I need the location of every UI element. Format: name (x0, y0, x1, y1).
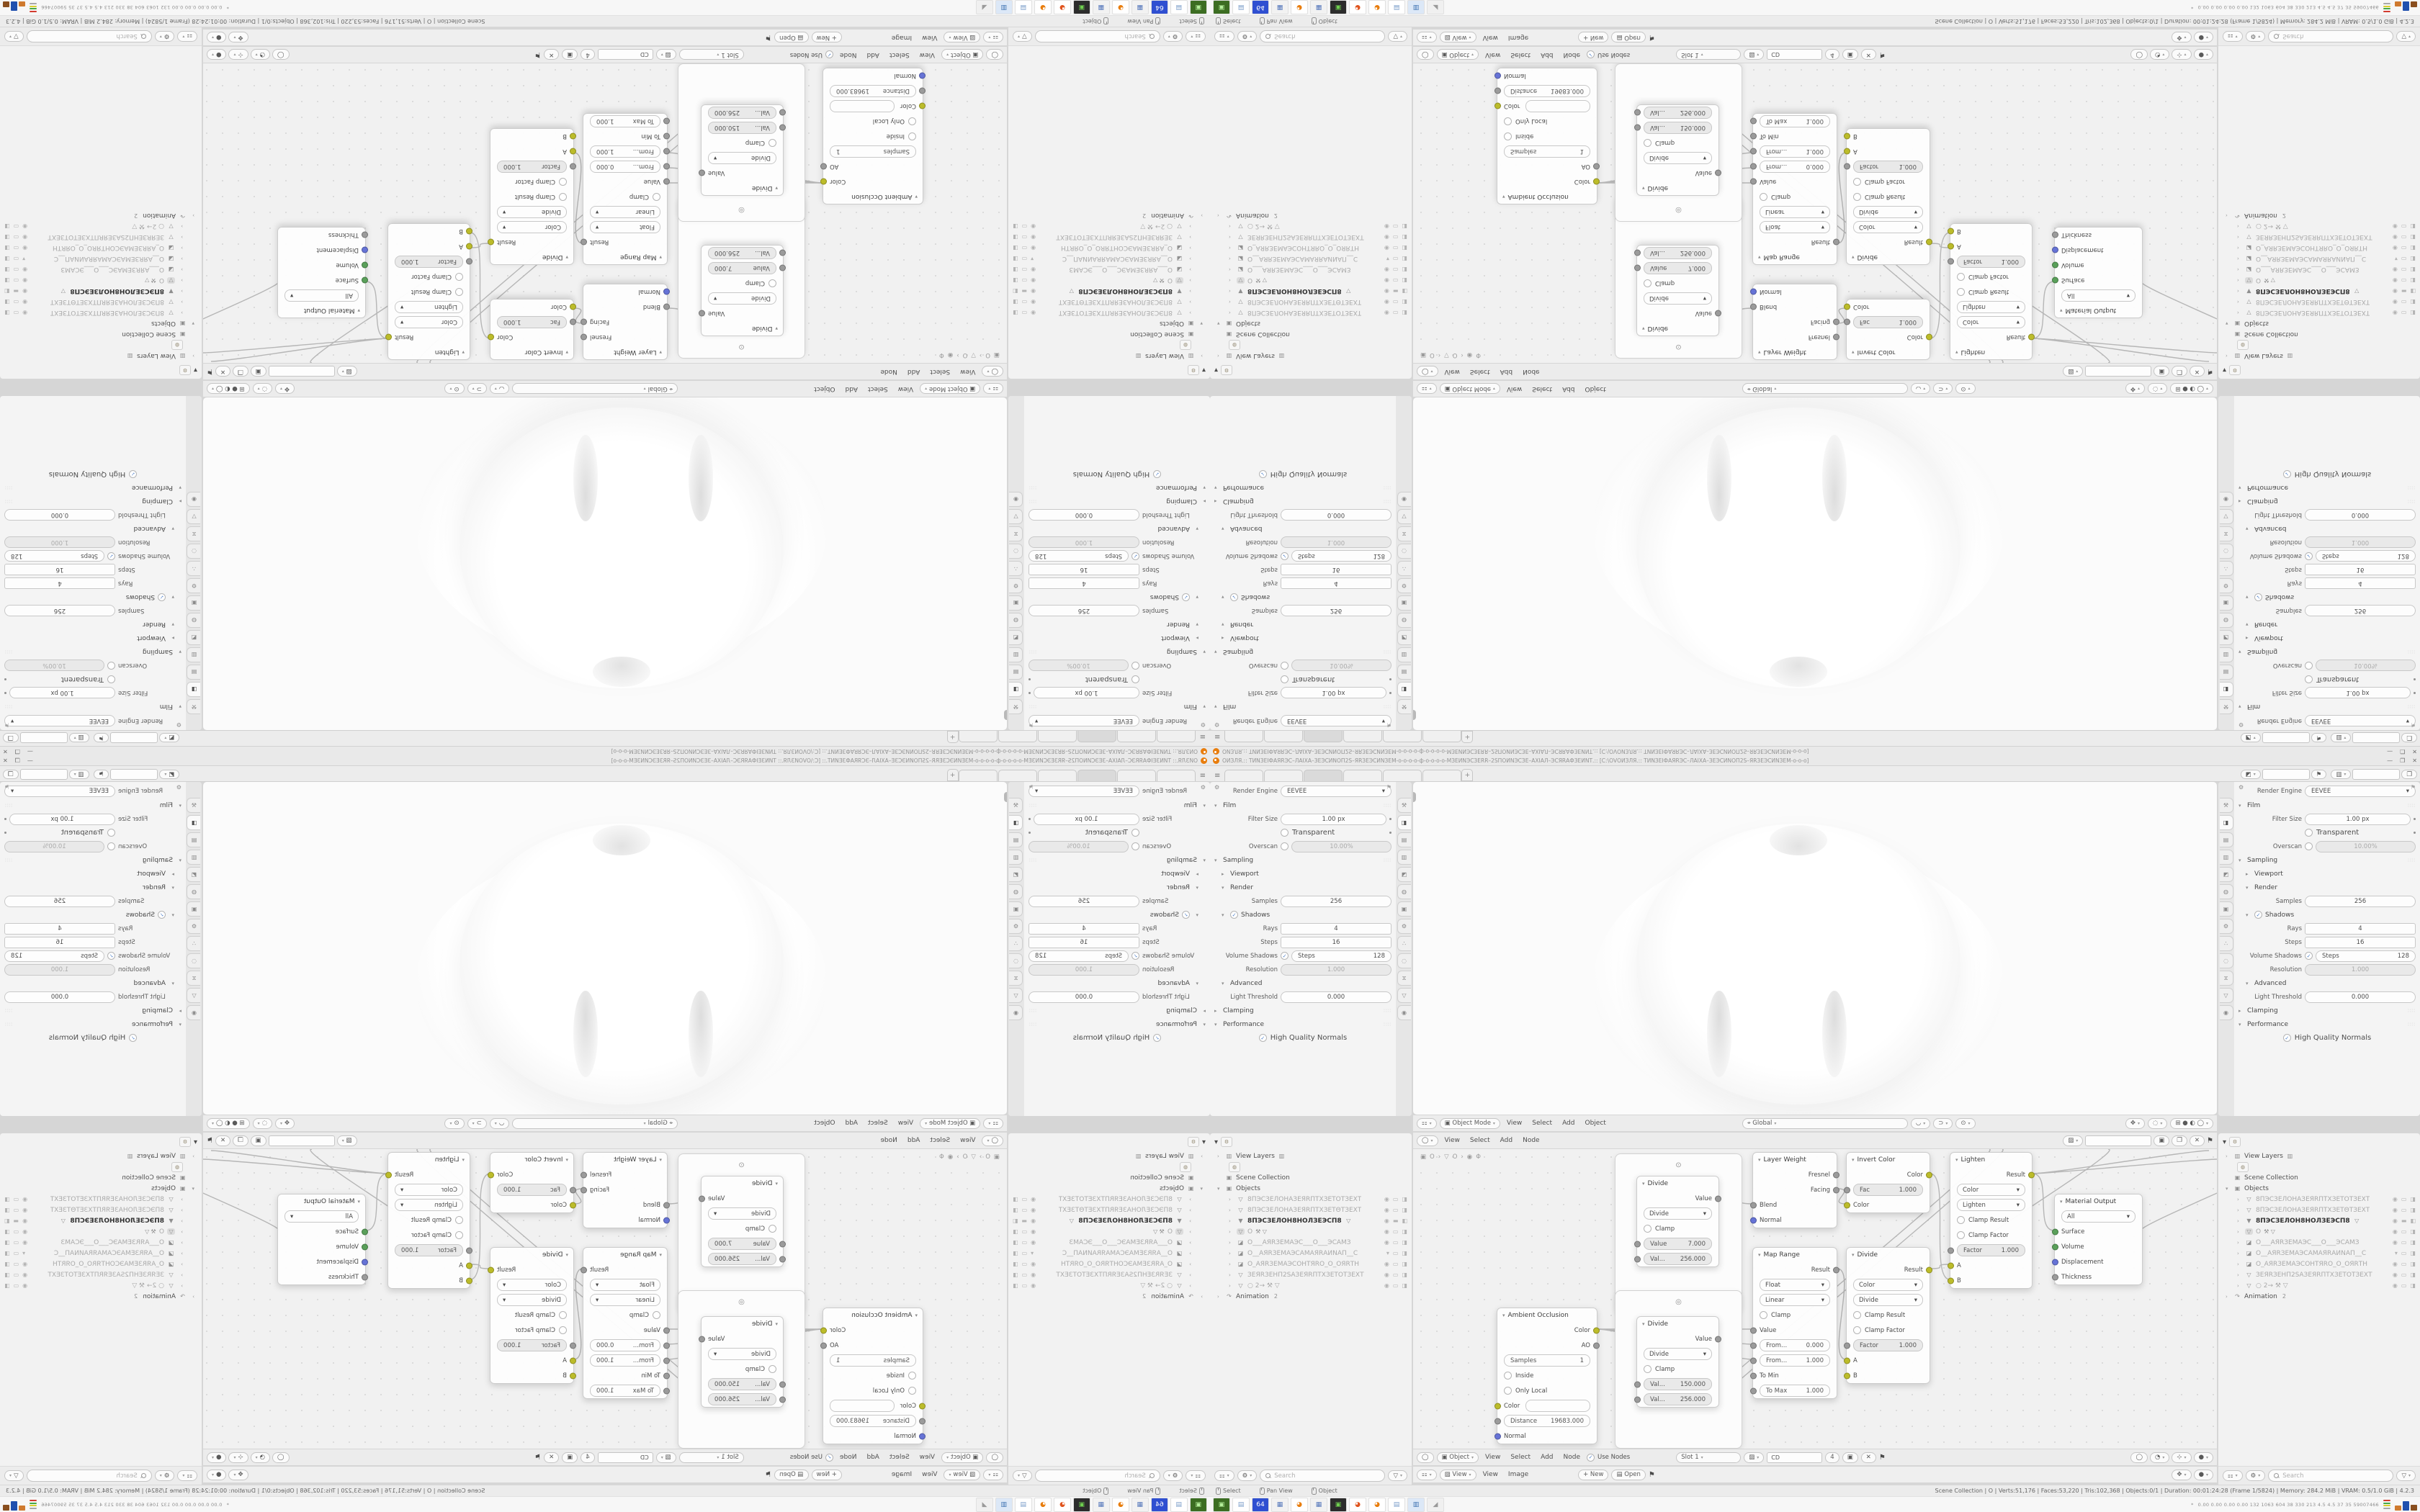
node-ambient-occlusion[interactable]: ▾Ambient OcclusionColorAOSamples1InsideO… (1497, 68, 1597, 204)
image-browse-button[interactable]: ▨▾ (337, 366, 357, 377)
collapse-caret-icon[interactable]: ▾ (1758, 1157, 1761, 1163)
new-image-button[interactable]: + New (1578, 32, 1608, 43)
unlink-button[interactable]: ✕ (2190, 1135, 2205, 1146)
node-header[interactable]: ▾Divide (1847, 250, 1930, 264)
outliner-display-mode-icon[interactable]: ⚙ (1188, 1137, 1199, 1147)
viewlayer-name-field[interactable] (2352, 769, 2400, 780)
minimize-button[interactable]: — (27, 748, 33, 755)
node-value-field[interactable]: Value7.000 (1644, 1238, 1712, 1250)
input-socket[interactable] (663, 1202, 670, 1208)
visibility-toggle-icon[interactable]: ◨ (2410, 310, 2416, 316)
search-input[interactable]: Search (2268, 30, 2393, 42)
workspace-tab-5[interactable] (1383, 731, 1422, 742)
section-sampling[interactable]: ▾Sampling∷∷ (2234, 645, 2420, 659)
input-socket[interactable] (2052, 277, 2058, 284)
unlink-button[interactable]: ✕ (215, 1135, 230, 1146)
prop-keyvalue-field[interactable]: Steps128 (2316, 950, 2416, 962)
outliner-object-row[interactable]: ›▽O⚒ ▽◉▭◨ (0, 275, 202, 286)
calculator-icon[interactable]: ▦ (1093, 1, 1110, 15)
menu-view[interactable]: View (918, 34, 941, 41)
section-render[interactable]: ▾Render (1024, 881, 1210, 894)
render-icon[interactable]: ◨ (1397, 815, 1411, 830)
firefox-icon[interactable]: ◕ (1349, 1, 1366, 15)
outliner-object-row[interactable]: ›◪O___АЯRЗЕМАЭС___O___ЭСАМЗ◉▭◨ (0, 1237, 202, 1248)
constraint-icon[interactable]: ⧖ (187, 526, 201, 541)
visibility-toggle-icon[interactable]: ◨ (1402, 1207, 1407, 1213)
animate-dot[interactable] (1028, 818, 1031, 820)
node-value-field[interactable]: Val...256.000 (708, 1253, 776, 1265)
prop-value-field[interactable]: 1.000 (1281, 537, 1391, 549)
visibility-toggle-icon[interactable]: ◨ (1402, 1239, 1407, 1246)
visibility-toggle-icon[interactable]: ▾ (1386, 256, 1389, 262)
scene-icon[interactable]: ◩▾ (159, 770, 179, 779)
visibility-toggle-icon[interactable]: ◨ (4, 310, 10, 316)
checkbox-icon[interactable] (1281, 662, 1289, 670)
radio-unchecked-icon[interactable] (559, 178, 567, 186)
new-image-button[interactable]: + New (1578, 1470, 1608, 1480)
outliner-animation-row[interactable]: ›↷Animation2 (1008, 1291, 1210, 1302)
prop-value-field[interactable]: 10.00% (1028, 660, 1129, 672)
viewlayer-selector[interactable]: ▥▾ ❐ (3, 769, 89, 780)
outliner-world-row[interactable]: ◍ (2218, 1161, 2420, 1172)
visibility-toggle-icon[interactable]: ◉ (1384, 288, 1389, 294)
visibility-toggle-icon[interactable]: ◉ (22, 1218, 27, 1224)
checkbox-icon[interactable] (1281, 675, 1289, 683)
visibility-toggle-icon[interactable]: ◉ (2393, 1272, 2398, 1278)
files-icon[interactable]: ▥ (1407, 1, 1425, 15)
visibility-toggle-icon[interactable]: ▭ (14, 1272, 19, 1278)
outliner-world-row[interactable]: ◍ (0, 340, 202, 351)
checkbox-icon[interactable] (1281, 829, 1289, 837)
node-select-dropdown[interactable]: Color▾ (1853, 1279, 1923, 1291)
node-select-dropdown[interactable]: All▾ (284, 289, 359, 302)
viewlayer-selector[interactable]: ▥▾ ❐ (3, 732, 89, 743)
image-browse-button[interactable]: ▨▾ (337, 1135, 357, 1146)
firefox-icon[interactable]: ◕ (1349, 1498, 1366, 1512)
visibility-toggle-icon[interactable]: ◉ (22, 288, 27, 294)
node-value-field[interactable]: Val...150.000 (1644, 122, 1712, 134)
minimize-button[interactable]: — (2387, 757, 2393, 764)
prop-value-field[interactable]: 16 (2305, 564, 2416, 576)
blender-icon[interactable]: ◕ (1034, 1, 1052, 15)
visibility-toggle-icon[interactable]: ◨ (1402, 1228, 1407, 1235)
checkbox-icon[interactable] (2305, 662, 2313, 670)
outliner-object-row[interactable]: ›▼8ПЭСЗЕЛОН8НОЛЗЕЭСП8▽◉▬◧ (1210, 1215, 1412, 1226)
material-slot-dropdown[interactable]: Slot 1▾ (679, 50, 744, 60)
calculator-icon[interactable]: ▦ (1271, 1, 1289, 15)
overlay-toggle-button[interactable]: ●▾ (2194, 32, 2213, 43)
prop-value-field[interactable]: 1.000 (4, 964, 115, 976)
section-sampling[interactable]: ▾Sampling∷∷ (1024, 853, 1210, 867)
use-nodes-toggle[interactable]: ✓Use Nodes (790, 1454, 833, 1462)
menu-add[interactable]: Add (904, 1137, 923, 1144)
outliner-object-row[interactable]: ›◪O_АЯRЗЕМАЭСОНТЯRО_O_ОЯRТН◉▭◨ (1210, 1259, 1412, 1269)
input-socket[interactable] (779, 265, 786, 271)
visibility-toggle-icon[interactable]: ◧ (4, 288, 10, 294)
visibility-toggle-icon[interactable]: ◨ (2410, 1207, 2416, 1213)
collapse-caret-icon[interactable]: ▾ (659, 349, 662, 355)
filter-button[interactable]: ▽▾ (1013, 31, 1032, 42)
world-icon[interactable]: ◍ (187, 884, 201, 899)
visibility-toggle-icon[interactable]: ▭ (2401, 1261, 2407, 1267)
unlink-button[interactable]: ✕ (2190, 366, 2205, 377)
node-select-dropdown[interactable]: Float▾ (1760, 221, 1830, 233)
outliner-view-layers[interactable]: ›▥View Layers▥ (1008, 1151, 1210, 1161)
outliner-object-row[interactable]: ›▽8ПЭСЗЕЛОНАЗЕЯRПТХЗЕТОТЗЕХТ◉▭◨ (0, 1194, 202, 1205)
datablock-name-field[interactable]: CD (598, 1452, 653, 1463)
node-divide[interactable]: ▾DivideResultColor▾Divide▾Clamp ResultCl… (490, 1247, 574, 1384)
input-socket[interactable] (919, 88, 926, 94)
visibility-toggle-icon[interactable]: ◉ (1384, 1239, 1389, 1246)
node-map-range[interactable]: ▾Map RangeResultFloat▾Linear▾ClampValueF… (1752, 113, 1837, 265)
app-menu-icon[interactable]: ≡ (1213, 731, 1224, 740)
visibility-toggle-icon[interactable]: ▭ (2401, 1228, 2407, 1235)
collapse-caret-icon[interactable]: ▾ (1852, 1252, 1855, 1258)
checkbox-icon[interactable] (107, 675, 115, 683)
input-socket[interactable] (663, 148, 670, 155)
node-header[interactable]: ▾Map Range (1753, 250, 1837, 264)
checkbox-icon[interactable] (1131, 662, 1139, 670)
node-header[interactable]: ▾Divide (490, 1248, 573, 1262)
shadows-checkbox[interactable]: ✓ (1230, 911, 1238, 919)
radio-unchecked-icon[interactable] (768, 1225, 776, 1233)
editor-type-button[interactable]: ⚏▾ (1186, 1470, 1206, 1481)
node-layer-weight[interactable]: ▾Layer WeightFresnelFacingBlendNormal (1752, 284, 1837, 360)
input-socket[interactable] (1750, 1357, 1757, 1364)
color-swatch-field[interactable] (830, 1400, 895, 1412)
editor-type-button[interactable]: ◯ (1417, 1452, 1434, 1463)
particles-icon[interactable]: ∴ (1010, 936, 1023, 951)
constraint-icon[interactable]: ⧖ (1010, 971, 1023, 986)
checkbox-icon[interactable]: ✓ (1259, 1034, 1267, 1042)
outliner-object-row[interactable]: ›▽O⚒ ▽◉▭◨ (1008, 1226, 1210, 1237)
radio-unchecked-icon[interactable] (455, 1216, 463, 1224)
outliner-object-row[interactable]: ›▼8ПЭСЗЕЛОН8НОЛЗЕЭСП8▽◉▬◧ (0, 1215, 202, 1226)
output-socket[interactable] (581, 239, 587, 246)
output-socket[interactable] (820, 1342, 827, 1349)
tool-icon[interactable]: ⚒ (1397, 798, 1411, 813)
visibility-toggle-icon[interactable]: ◨ (2410, 223, 2416, 230)
visibility-toggle-icon[interactable]: ▭ (2401, 1196, 2407, 1202)
section-sampling[interactable]: ▾Sampling∷∷ (1024, 645, 1210, 659)
editor-type-button[interactable]: ◯ (1417, 50, 1434, 60)
monitor-app-icon[interactable]: ▣ (1073, 1, 1090, 15)
prop-value-field[interactable]: 256 (1281, 606, 1391, 617)
node-select-dropdown[interactable]: Divide▾ (708, 1207, 776, 1220)
node-lighten[interactable]: ▾LightenResultColor▾Lighten▾Clamp Result… (387, 223, 470, 360)
shadows-checkbox[interactable]: ✓ (1230, 593, 1238, 601)
viewlayer-selector[interactable]: ▥▾ ❐ (2331, 732, 2417, 743)
color-swatch-field[interactable] (1525, 1400, 1590, 1412)
shield-fake-user-button[interactable]: ▣ (562, 1452, 578, 1463)
editor-type-button[interactable]: ⚏▾ (983, 384, 1003, 395)
input-socket[interactable] (362, 247, 368, 253)
visibility-toggle-icon[interactable]: ▭ (14, 1207, 19, 1213)
scene-icon[interactable]: ◩ (1010, 630, 1023, 645)
visibility-toggle-icon[interactable]: ▭ (2401, 234, 2407, 240)
node-map-range[interactable]: ▾Map RangeResultFloat▾Linear▾ClampValueF… (583, 113, 668, 265)
input-socket[interactable] (1750, 148, 1757, 155)
outliner-object-row[interactable]: ›▽O⚒ ▽◉▭◨ (1008, 275, 1210, 286)
animate-dot[interactable] (4, 692, 6, 694)
menu-view[interactable]: View (895, 385, 917, 392)
visibility-toggle-icon[interactable]: ◉ (22, 223, 27, 230)
toolbar-toggle-nub[interactable] (1413, 792, 1416, 802)
3d-viewport[interactable] (203, 397, 1007, 730)
section-viewport[interactable]: ▸Viewport (1024, 867, 1210, 881)
prop-value-field[interactable]: 1.000 (1028, 964, 1139, 976)
menu-add[interactable]: Add (904, 368, 923, 375)
prop-value-field[interactable]: 0.000 (1028, 510, 1139, 521)
input-socket[interactable] (1844, 1357, 1850, 1364)
prop-value-field[interactable]: 1.00 px (1034, 814, 1139, 825)
input-socket[interactable] (1750, 1327, 1757, 1333)
node-divide[interactable]: ▾DivideResultColor▾Divide▾Clamp ResultCl… (490, 128, 574, 265)
new-copy-button[interactable]: ❐ (233, 1135, 248, 1146)
input-socket[interactable] (1750, 1217, 1757, 1223)
particles-icon[interactable]: ∴ (1397, 561, 1411, 576)
collapse-caret-icon[interactable]: ▾ (775, 185, 778, 191)
section-clamping[interactable]: ▸Clamping∷∷ (2234, 495, 2420, 508)
visibility-toggle-icon[interactable]: ▭ (1393, 1228, 1399, 1235)
visibility-toggle-icon[interactable]: ◉ (22, 1239, 27, 1246)
new-copy-button[interactable]: ❐ (2172, 1135, 2187, 1146)
viewlayer-name-field[interactable] (2352, 732, 2400, 743)
speaker-muted-icon[interactable]: ◢ (1427, 1, 1444, 15)
prop-value-field[interactable]: 4 (4, 923, 115, 935)
notepad-icon[interactable]: ▤ (1170, 1, 1188, 15)
outliner-object-row[interactable]: ›▽8ПЭСЗЕЛОНАЗЕЯRПТХЗЕТОТЗЕХТ◉▭◨ (2218, 1194, 2420, 1205)
scene-selector[interactable]: ◩▾ ⚑ (2241, 732, 2327, 743)
visibility-toggle-icon[interactable]: ▭ (1022, 1272, 1028, 1278)
snap-button[interactable]: ◡▾ (1911, 384, 1930, 395)
overlay-button[interactable]: ◌▾ (2148, 384, 2167, 395)
outliner-object-row[interactable]: ›▽○ 2→ ⚒ ▽◉▭◨ (2218, 221, 2420, 232)
node-layer-weight[interactable]: ▾Layer WeightFresnelFacingBlendNormal (1752, 1152, 1837, 1228)
radio-unchecked-icon[interactable] (768, 139, 776, 147)
input-socket[interactable] (2052, 1259, 2058, 1265)
rotate-snap-button[interactable]: ◔▾ (251, 50, 270, 60)
animate-dot[interactable] (4, 818, 6, 820)
radio-unchecked-icon[interactable] (1760, 1311, 1767, 1319)
filter-mode-button[interactable]: ⚙▾ (1237, 31, 1258, 42)
transform-orientation-dropdown[interactable]: ⌖ Global▾ (1742, 384, 1908, 395)
workspace-tab-2[interactable] (1264, 770, 1303, 781)
input-socket[interactable] (362, 1243, 368, 1250)
input-socket[interactable] (1844, 133, 1850, 140)
search-input[interactable]: Search (1260, 30, 1385, 42)
output-socket[interactable] (385, 1171, 392, 1178)
visibility-toggle-icon[interactable]: ◨ (1402, 266, 1407, 273)
outliner-objects-collection[interactable]: ▾▣Objects (1210, 1183, 1412, 1194)
editor-type-button[interactable]: ⚏▾ (1417, 384, 1437, 395)
editor-type-button[interactable]: ⚏▾ (1186, 31, 1206, 42)
node-select-dropdown[interactable]: Linear▾ (1760, 206, 1830, 218)
input-socket[interactable] (570, 1187, 576, 1193)
visibility-toggle-icon[interactable]: ▭ (1393, 277, 1399, 284)
shader-node-editor[interactable]: ⊙◎▾DivideValueDivide▾ClampValue7.000Val.… (1413, 1149, 2217, 1449)
outliner-object-row[interactable]: ›▽8ПЭСЗЕЛОНАЗЕЯRПТХЗЕТΘТЗЕХТ◉▭◨ (1008, 297, 1210, 307)
node-value-field[interactable]: Val...256.000 (708, 107, 776, 119)
node-select-dropdown[interactable]: Divide▾ (1644, 1348, 1712, 1360)
tool-icon[interactable]: ⚒ (2220, 798, 2233, 813)
material-icon[interactable]: ◉ (1397, 492, 1411, 507)
node-select-dropdown[interactable]: Color▾ (1853, 221, 1923, 233)
prop-value-field[interactable]: 4 (2305, 578, 2416, 590)
input-socket[interactable] (362, 1259, 368, 1265)
collapse-caret-icon[interactable]: ▾ (915, 194, 918, 199)
workspace-tab-4[interactable] (1343, 731, 1382, 742)
visibility-toggle-icon[interactable]: ▭ (1393, 245, 1399, 251)
output-socket[interactable] (1926, 1171, 1932, 1178)
section-film[interactable]: ▾Film∷∷ (0, 700, 186, 714)
visibility-toggle-icon[interactable]: ◧ (1013, 1218, 1018, 1224)
node-select-dropdown[interactable]: Linear▾ (1760, 1294, 1830, 1306)
node-layer-weight[interactable]: ▾Layer WeightFresnelFacingBlendNormal (583, 1152, 668, 1228)
output-socket[interactable] (2028, 1171, 2035, 1178)
visibility-toggle-icon[interactable]: ◧ (1402, 1218, 1407, 1224)
editor-type-button[interactable]: ◯▾ (1417, 366, 1438, 377)
render-engine-dropdown[interactable]: EEVEE▾ (2305, 786, 2416, 797)
outliner-object-row[interactable]: ›▽8ПЭСЗЕЛОНАЗЕЯRПТХЗЕТΘТЗЕХТ◉▭◨ (2218, 297, 2420, 307)
checkbox-row[interactable]: ✓High Quality Normals (1028, 470, 1206, 478)
workspace-tab-3[interactable] (1304, 731, 1343, 742)
visibility-toggle-icon[interactable]: ▭ (1022, 256, 1028, 262)
transform-orientation-dropdown[interactable]: ⌖ Global▾ (512, 1118, 678, 1129)
mode-dropdown[interactable]: ▣ Object Mode▾ (1440, 384, 1500, 395)
node-value-field[interactable]: Factor1.000 (1853, 161, 1923, 173)
checkbox-row[interactable]: Transparent (1281, 675, 1386, 683)
section-shadows[interactable]: ▾✓Shadows (2234, 590, 2420, 604)
workspace-tab-4[interactable] (1343, 770, 1382, 781)
outliner-view-layers[interactable]: ›▥View Layers▥ (0, 1151, 202, 1161)
prop-value-field[interactable]: 16 (4, 564, 115, 576)
physics-icon[interactable]: ◌ (1010, 544, 1023, 559)
toolbar-toggle-nub[interactable] (1004, 792, 1007, 802)
radio-unchecked-icon[interactable] (455, 1231, 463, 1239)
section-performance[interactable]: ▾Performance∷∷ (1210, 481, 1396, 495)
tool-circle-button[interactable]: ◯ (2130, 1452, 2148, 1463)
checkbox-row[interactable]: ✓High Quality Normals (4, 1034, 181, 1042)
input-socket[interactable] (1844, 319, 1850, 325)
object-icon[interactable]: ▣ (1010, 595, 1023, 611)
gizmo-button[interactable]: ✥▾ (275, 384, 295, 395)
collapse-caret-icon[interactable]: ▾ (2060, 1199, 2063, 1205)
visibility-toggle-icon[interactable]: ▭ (14, 245, 19, 251)
use-nodes-checkbox[interactable]: ✓ (1587, 1454, 1595, 1462)
visibility-toggle-icon[interactable]: ◉ (22, 1196, 27, 1202)
node-header[interactable]: ▾Divide (702, 181, 783, 195)
render-icon[interactable]: ◨ (1010, 682, 1023, 697)
visibility-toggle-icon[interactable]: ◨ (1013, 1261, 1018, 1267)
menu-image[interactable]: Image (1505, 34, 1532, 41)
workspace-tab-4[interactable] (1038, 770, 1077, 781)
outliner-object-row[interactable]: ›▽○ 2→ ⚒ ▽◉▭◨ (1008, 221, 1210, 232)
input-socket[interactable] (1750, 1387, 1757, 1394)
output-socket[interactable] (581, 319, 587, 325)
filter-button[interactable]: ▽▾ (2396, 31, 2416, 42)
section-clamping[interactable]: ▸Clamping∷∷ (0, 495, 186, 508)
input-socket[interactable] (362, 232, 368, 238)
overlay-toggle-button[interactable]: ●▾ (207, 50, 226, 60)
section-render[interactable]: ▾Render (2234, 618, 2420, 631)
visibility-toggle-icon[interactable]: ▭ (2401, 277, 2407, 284)
menu-node[interactable]: Node (877, 368, 901, 375)
shield-fake-user-button[interactable]: ▣ (2154, 1135, 2169, 1146)
app-menu-icon[interactable]: ≡ (1196, 772, 1207, 781)
visibility-toggle-icon[interactable]: ◉ (22, 299, 27, 305)
visibility-toggle-icon[interactable]: ◉ (2393, 234, 2398, 240)
collapse-caret-icon[interactable]: ▾ (659, 254, 662, 260)
section-clamping[interactable]: ▸Clamping∷∷ (1210, 495, 1396, 508)
section-render[interactable]: ▾Render (1210, 881, 1396, 894)
animate-dot[interactable] (4, 678, 6, 680)
outliner-animation-row[interactable]: ›↷Animation2 (2218, 210, 2420, 221)
menu-object[interactable]: Object (1582, 385, 1610, 392)
outliner-object-row[interactable]: ›◪O_АЯRЗЕМАЭСОНТЯRО_O_ОЯRТН◉▭◨ (1008, 243, 1210, 253)
visibility-toggle-icon[interactable]: ◉ (2393, 1218, 2398, 1224)
gizmo-button[interactable]: ✥▾ (2125, 1118, 2145, 1129)
input-socket[interactable] (1750, 289, 1757, 295)
input-socket[interactable] (570, 1357, 576, 1364)
node-select-dropdown[interactable]: Divide▾ (708, 1348, 776, 1360)
node-header[interactable]: ▾Ambient Occlusion (1497, 189, 1597, 204)
node-value-field[interactable]: Distance19683.000 (1504, 1415, 1590, 1427)
world-icon[interactable]: ◍ (1010, 884, 1023, 899)
visibility-toggle-icon[interactable]: ▭ (1022, 277, 1028, 284)
constraint-icon[interactable]: ⧖ (2220, 971, 2233, 986)
checkbox-icon[interactable] (2305, 829, 2313, 837)
material-slot-dropdown[interactable]: Slot 1▾ (679, 1452, 744, 1463)
output-socket[interactable] (1833, 1266, 1839, 1273)
visibility-toggle-icon[interactable]: ▾ (22, 1250, 25, 1256)
radio-unchecked-icon[interactable] (1504, 1387, 1512, 1395)
outliner-view-layers[interactable]: ›▥View Layers▥ (2218, 1151, 2420, 1161)
node-material-output[interactable]: ▾Material OutputAll▾SurfaceVolumeDisplac… (2054, 227, 2143, 318)
prop-value-field[interactable]: 10.00% (1291, 841, 1391, 852)
outliner-scene-collection[interactable]: ▣Scene Collection (1210, 1172, 1412, 1183)
datablock-name-field[interactable]: CD (1767, 50, 1822, 60)
modifier-icon[interactable]: ⚙ (187, 919, 201, 934)
input-socket[interactable] (1634, 1256, 1641, 1262)
outliner-view-layers[interactable]: ›▥View Layers▥ (1008, 351, 1210, 361)
datablock-name-field[interactable]: CD (1767, 1452, 1822, 1463)
node-ambient-occlusion[interactable]: ▾Ambient OcclusionColorAOSamples1InsideO… (823, 1308, 923, 1444)
filter-button[interactable]: ▽▾ (1388, 1470, 1407, 1481)
snap-button[interactable]: ◡▾ (1911, 1118, 1930, 1129)
floppy64-icon[interactable]: 64 (1151, 1498, 1168, 1512)
visibility-toggle-icon[interactable]: ▭ (1393, 223, 1399, 230)
data-icon[interactable]: ▽ (2220, 988, 2233, 1003)
visibility-toggle-icon[interactable]: ▭ (14, 256, 19, 262)
render-icon[interactable]: ◨ (2220, 815, 2233, 830)
input-socket[interactable] (1634, 1381, 1641, 1387)
visibility-toggle-icon[interactable]: ◨ (1013, 1282, 1018, 1289)
close-button[interactable]: ✕ (3, 748, 8, 755)
mode-dropdown[interactable]: ▣ Object Mode▾ (1440, 1118, 1500, 1129)
filter-mode-button[interactable]: ⚙▾ (2246, 31, 2266, 42)
menu-select[interactable]: Select (1466, 1137, 1494, 1144)
add-workspace-button[interactable]: + (1461, 731, 1473, 743)
visibility-toggle-icon[interactable]: ◨ (2410, 1239, 2416, 1246)
reroute-dot-icon[interactable]: ◎ (738, 1298, 745, 1306)
collapse-caret-icon[interactable]: ▾ (1642, 325, 1645, 331)
prop-value-field[interactable]: 4 (2305, 923, 2416, 935)
checkbox-row[interactable]: Transparent (9, 675, 115, 683)
render-engine-dropdown[interactable]: EEVEE▾ (2305, 716, 2416, 727)
outliner-world-row[interactable]: ◍ (1210, 1161, 1412, 1172)
radio-unchecked-icon[interactable] (1957, 273, 1965, 281)
